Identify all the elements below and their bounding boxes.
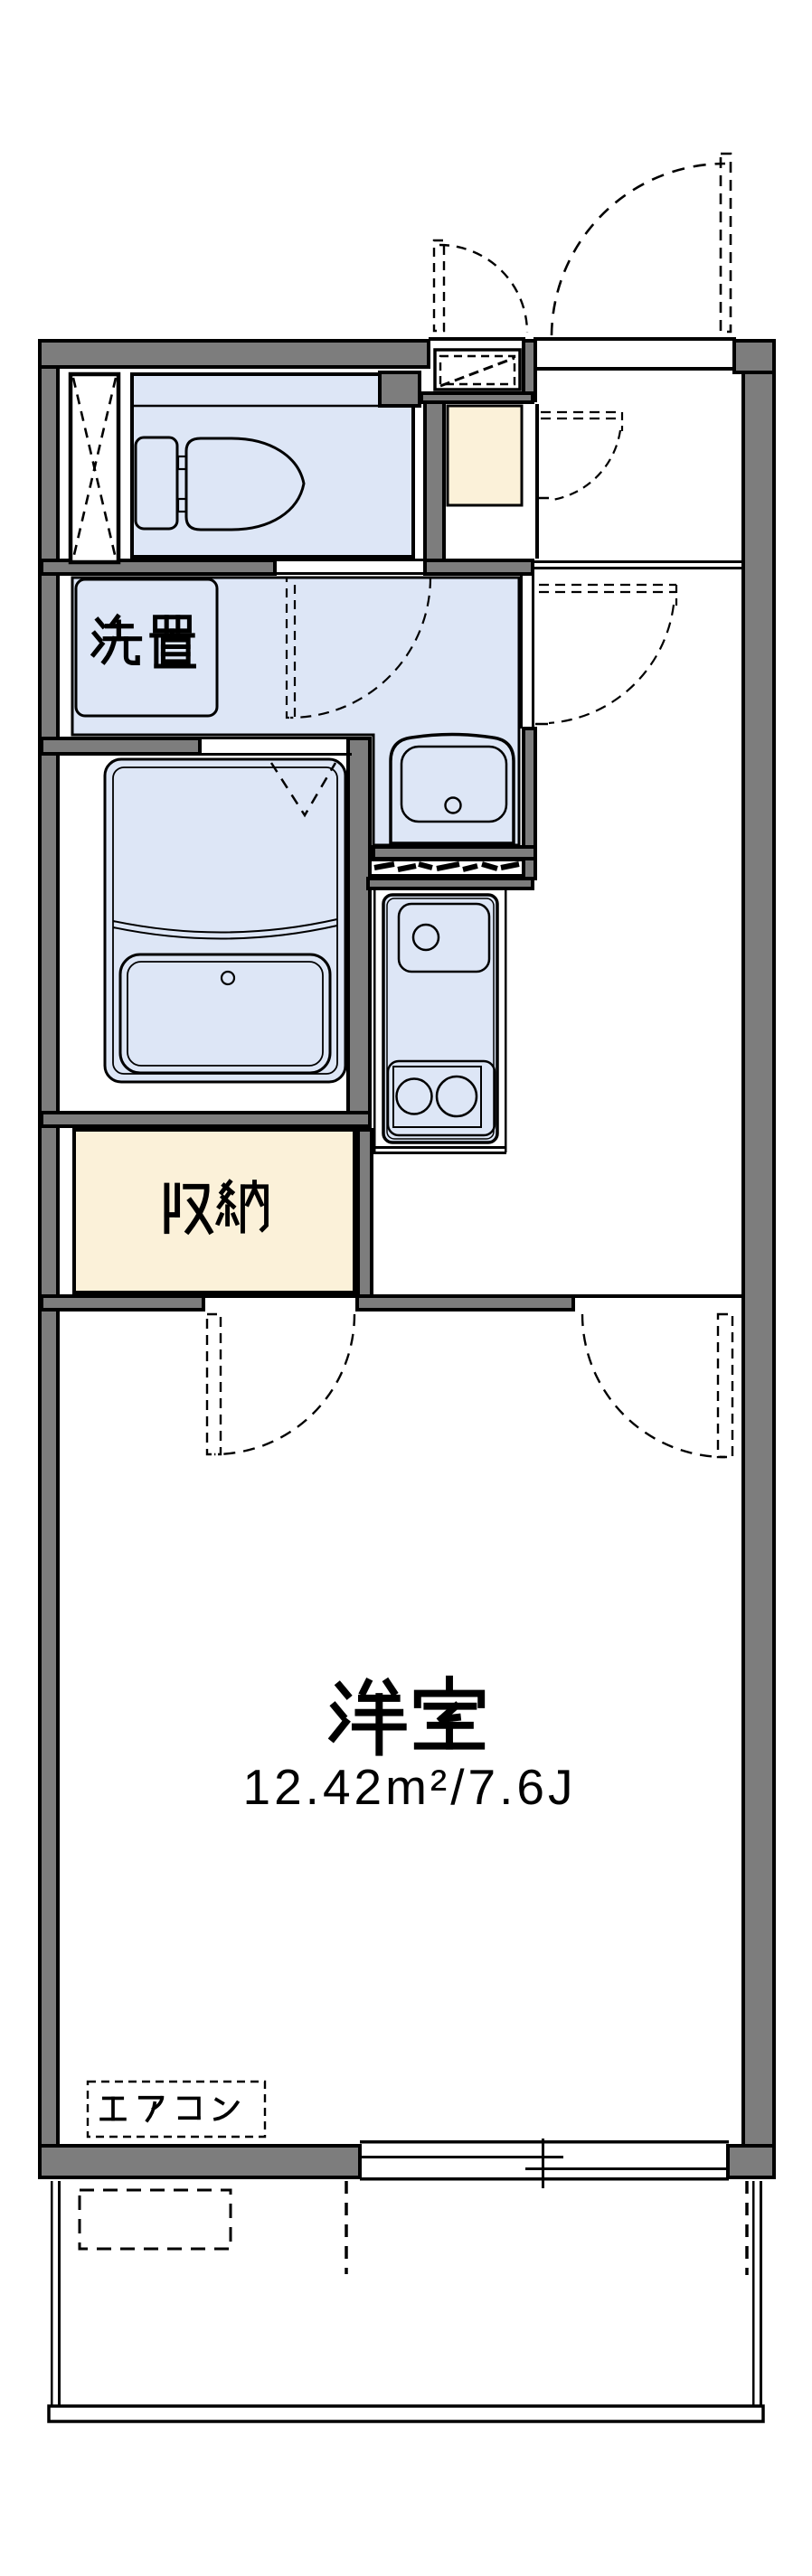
- svg-text:12.42m²/7.6J: 12.42m²/7.6J: [242, 1759, 576, 1815]
